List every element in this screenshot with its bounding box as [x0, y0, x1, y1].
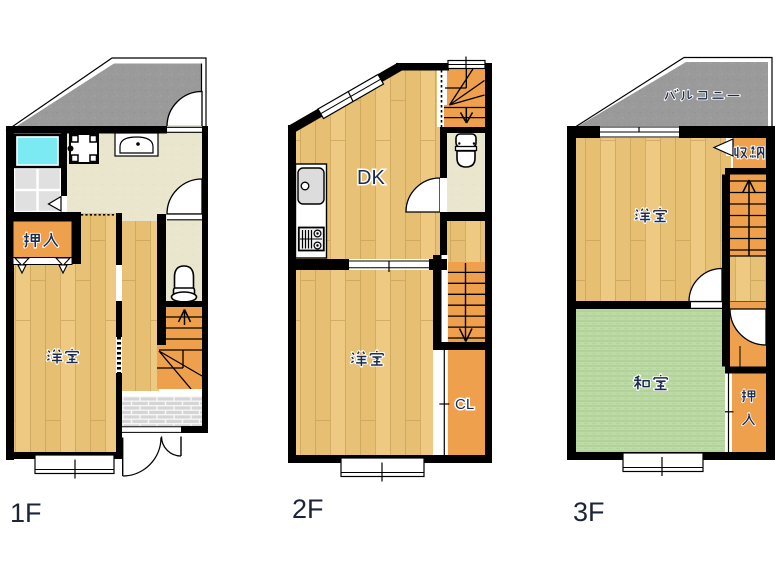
svg-text:2F: 2F	[292, 494, 324, 524]
svg-text:3F: 3F	[573, 497, 605, 527]
svg-text:DK: DK	[357, 167, 385, 189]
svg-text:CL: CL	[455, 396, 474, 413]
svg-text:1F: 1F	[10, 498, 42, 528]
